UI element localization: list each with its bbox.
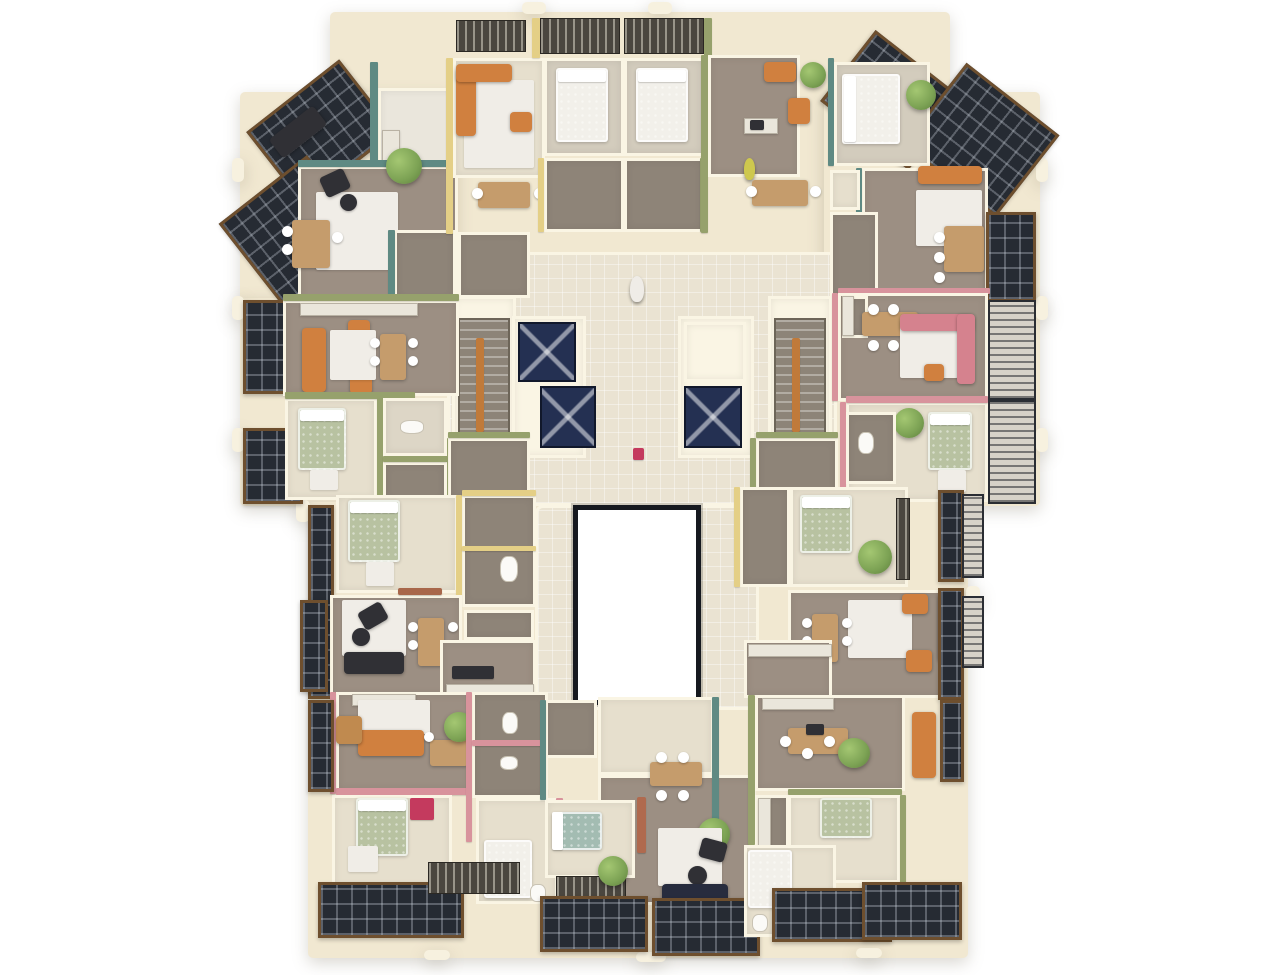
- bathroom-a2: [458, 232, 530, 298]
- dining-chair: [842, 636, 852, 646]
- dining-chair: [408, 356, 418, 366]
- sofa-orange-l: [456, 64, 512, 82]
- dining-table: [650, 762, 702, 786]
- accent-wall-pink: [472, 740, 548, 746]
- dining-chair: [656, 752, 667, 763]
- bath-fixture: [752, 914, 768, 932]
- bookshelf-colorful: [398, 588, 442, 595]
- balcony-bottom-glazing: [862, 882, 962, 940]
- plant-pot: [598, 856, 628, 886]
- dining-chair: [868, 340, 879, 351]
- elevator-shaft: [540, 386, 596, 448]
- dining-table: [478, 182, 530, 208]
- stool-black: [352, 628, 370, 646]
- bed-pillows: [802, 497, 850, 508]
- bed-pillows: [300, 410, 344, 421]
- dining-chair: [868, 304, 879, 315]
- pilaster: [424, 950, 450, 960]
- elevator-machine-room: [684, 322, 746, 382]
- sofa-black: [344, 652, 404, 674]
- dining-chair: [746, 186, 757, 197]
- balcony-right-glazing: [938, 490, 964, 582]
- courtyard-lightwell: [573, 505, 701, 705]
- kitchen-counter: [842, 296, 854, 336]
- balcony-shelving: [962, 596, 984, 668]
- armchair-wood: [336, 716, 362, 744]
- bed-pillows: [844, 76, 856, 142]
- stool-black: [688, 866, 707, 885]
- bed-pillows: [552, 812, 563, 850]
- dining-chair: [802, 748, 813, 759]
- hallway-a4: [830, 170, 860, 210]
- double-bed-green: [820, 798, 872, 838]
- balcony-right-glazing: [940, 700, 964, 782]
- dining-chair: [678, 790, 689, 801]
- accent-wall-teal: [370, 62, 378, 174]
- dining-chair: [934, 252, 945, 263]
- bath-fixture: [858, 432, 874, 454]
- balcony-right-glazing: [938, 588, 964, 700]
- sofa-orange: [764, 62, 796, 82]
- elevator-shaft: [518, 322, 576, 382]
- plant-pot: [858, 540, 892, 574]
- dining-chair: [332, 232, 343, 243]
- pilaster: [1036, 296, 1048, 320]
- armchair-white: [366, 562, 394, 586]
- accent-wall-pink: [466, 692, 472, 842]
- bed-pillows: [350, 502, 398, 513]
- bathroom-a10: [545, 700, 597, 758]
- dining-chair: [282, 226, 293, 237]
- dining-chair: [824, 736, 835, 747]
- pilaster: [232, 158, 244, 182]
- accent-wall-yellow: [538, 158, 544, 232]
- dining-chair: [810, 186, 821, 197]
- kitchen-appliances: [452, 666, 494, 679]
- area-rug: [358, 700, 430, 734]
- dining-table: [380, 334, 406, 380]
- dining-chair: [448, 622, 458, 632]
- pilaster: [1036, 428, 1048, 452]
- wardrobe-top: [456, 20, 526, 52]
- floor-plan-render: [0, 0, 1280, 975]
- bathroom-low-a7: [464, 610, 534, 640]
- stair-rail-left: [476, 338, 484, 432]
- bath-fixture: [502, 712, 518, 734]
- red-object-lobby: [633, 448, 644, 460]
- dining-table: [430, 740, 468, 766]
- wardrobe-top: [624, 18, 704, 54]
- daybed-orange: [912, 712, 936, 778]
- balcony-shelving: [962, 494, 984, 578]
- dining-chair: [408, 338, 418, 348]
- dining-chair: [780, 736, 791, 747]
- pilaster: [522, 2, 546, 14]
- bath-fixture: [500, 756, 518, 770]
- dining-table: [944, 226, 984, 272]
- accent-wall-pink: [846, 396, 988, 403]
- pilaster: [648, 2, 672, 14]
- dining-chair: [678, 752, 689, 763]
- plant-pot: [386, 148, 422, 184]
- plant-pot: [838, 738, 870, 768]
- elevator-shaft: [684, 386, 742, 448]
- armchair-white: [938, 470, 966, 492]
- balcony-bottom-glazing: [540, 896, 648, 952]
- stair-rail-right: [792, 338, 800, 432]
- bathroom-block-a8: [740, 487, 790, 587]
- dining-chair: [888, 304, 899, 315]
- balcony-shelving: [988, 400, 1036, 504]
- accent-wall-olive: [756, 432, 838, 438]
- bath-fixture: [500, 556, 518, 582]
- accent-wall-yellow: [456, 495, 462, 607]
- accent-wall-olive: [701, 55, 708, 233]
- dining-chair: [370, 338, 380, 348]
- wardrobe-balcony: [428, 862, 520, 894]
- kitchen-counter: [300, 303, 418, 316]
- bathroom-center-right: [624, 158, 704, 232]
- ottoman-orange: [924, 364, 944, 381]
- dining-chair: [934, 272, 945, 283]
- bookshelf-colorful: [637, 797, 646, 853]
- wardrobe-tall: [896, 498, 910, 580]
- dining-chair: [472, 188, 483, 199]
- armchair-orange: [788, 98, 810, 124]
- balcony-shelving: [988, 300, 1036, 400]
- accent-wall-olive: [448, 432, 530, 438]
- dining-chair: [934, 232, 945, 243]
- chair-magenta: [410, 798, 434, 820]
- sofa-pink-l: [957, 314, 975, 384]
- accent-wall-olive: [383, 456, 447, 462]
- person-in-apartment: [744, 158, 755, 180]
- armchair-orange: [510, 112, 532, 132]
- accent-wall-yellow: [446, 58, 453, 234]
- accent-wall-olive: [748, 695, 755, 845]
- bed-pillows: [638, 70, 686, 82]
- sofa-orange: [302, 328, 326, 392]
- stove-top: [750, 120, 764, 130]
- accent-wall-olive: [283, 294, 459, 301]
- plant-pot: [800, 62, 826, 88]
- area-rug: [330, 330, 376, 380]
- accent-wall-yellow: [462, 490, 536, 496]
- accent-wall-teal: [540, 700, 546, 800]
- bathroom-top-left: [394, 230, 456, 302]
- chaise-white: [310, 470, 338, 490]
- accent-wall-yellow: [532, 18, 540, 58]
- dining-chair: [408, 622, 418, 632]
- dining-chair: [656, 790, 667, 801]
- accent-wall-olive: [900, 795, 906, 885]
- accent-wall-yellow: [734, 487, 740, 587]
- dining-chair: [842, 618, 852, 628]
- armchair-orange: [902, 594, 928, 614]
- bath-fixture: [400, 420, 424, 434]
- accent-wall-yellow: [462, 546, 536, 551]
- dining-table: [292, 220, 330, 268]
- accent-wall-teal: [298, 160, 460, 167]
- bed-pillows: [358, 800, 406, 811]
- plant-pot: [906, 80, 936, 110]
- armchair-orange: [906, 650, 932, 672]
- dining-chair: [802, 618, 812, 628]
- bed-pillows: [930, 414, 970, 425]
- dining-table: [752, 180, 808, 206]
- armchair-white: [348, 846, 378, 872]
- accent-wall-olive: [704, 18, 712, 58]
- kitchen-counter: [748, 644, 832, 657]
- sofa-orange: [918, 166, 982, 184]
- wardrobe-top: [540, 18, 620, 54]
- pilaster: [856, 948, 882, 958]
- bathroom-a4: [830, 212, 878, 298]
- dining-chair: [888, 340, 899, 351]
- accent-wall-teal: [388, 230, 395, 302]
- dining-chair: [408, 640, 418, 650]
- bathroom-block-a7: [462, 495, 536, 607]
- stool-black: [340, 194, 357, 211]
- bathroom-center-left: [544, 158, 624, 232]
- bed-pillows: [558, 70, 606, 82]
- laptop-black: [806, 724, 824, 735]
- person-in-lobby: [630, 276, 644, 302]
- dining-chair: [370, 356, 380, 366]
- balcony-left-glazing: [308, 700, 334, 792]
- dining-chair: [282, 244, 293, 255]
- sofa-orange: [358, 730, 424, 756]
- dining-chair: [424, 732, 434, 742]
- plant-pot: [894, 408, 924, 438]
- balcony-corner-glazing: [300, 600, 328, 692]
- balcony-right-glazing: [986, 212, 1036, 302]
- kitchen-counter: [762, 698, 834, 710]
